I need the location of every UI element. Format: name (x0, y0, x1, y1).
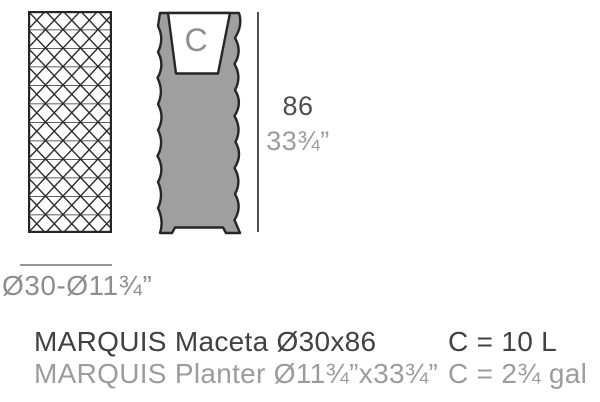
product-name-metric: MARQUIS Maceta Ø30x86 (34, 328, 376, 356)
lattice-body (29, 12, 111, 232)
capacity-gallons: C = 2¾ gal (448, 360, 587, 388)
capacity-liters: C = 10 L (448, 328, 557, 356)
product-spec-sheet: { "figure": { "section_label": "C" }, "d… (0, 0, 600, 402)
section-view-drawing: C (148, 8, 248, 238)
height-value-inches: 33¾” (250, 128, 346, 155)
product-name-imperial: MARQUIS Planter Ø11¾”x33¾” (34, 360, 438, 388)
container-capacity-label: C (184, 22, 207, 58)
diameter-values-label: Ø30-Ø11¾” (2, 272, 152, 300)
width-dimension-line (20, 264, 112, 266)
height-value-cm: 86 (258, 93, 338, 120)
front-view-drawing (28, 11, 112, 233)
height-dimension-line (257, 12, 259, 232)
